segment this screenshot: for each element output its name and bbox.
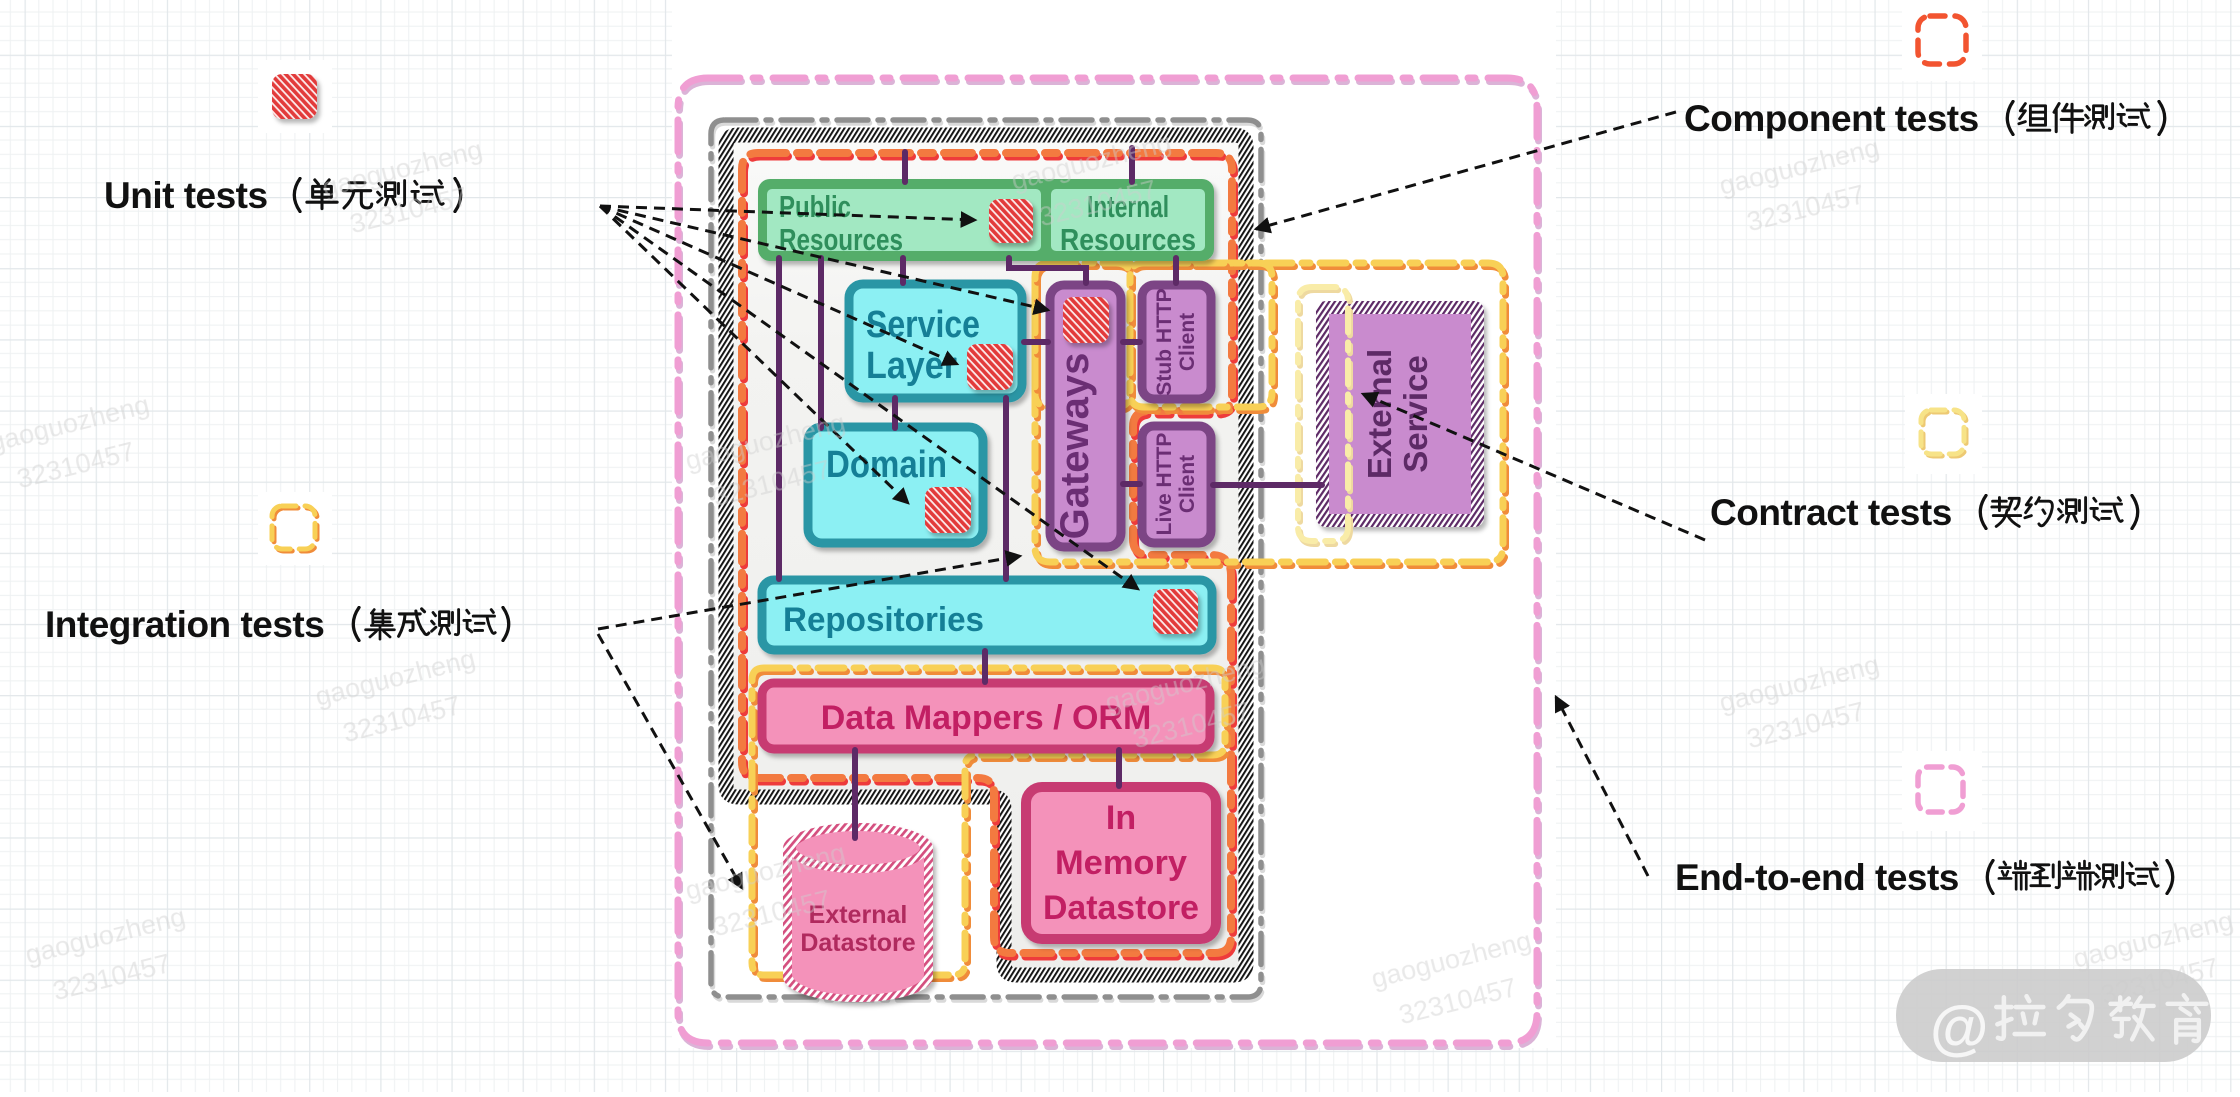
- svg-text:In: In: [1106, 799, 1136, 837]
- svg-text:External: External: [1361, 349, 1398, 479]
- svg-text:Layer: Layer: [866, 345, 957, 387]
- svg-text:Component tests: Component tests: [1684, 98, 1979, 139]
- svg-text:Service: Service: [866, 304, 980, 346]
- svg-text:Public: Public: [779, 189, 851, 224]
- svg-text:End-to-end tests: End-to-end tests: [1675, 857, 1959, 898]
- svg-text:Datastore: Datastore: [1043, 889, 1199, 927]
- svg-text:Domain: Domain: [826, 444, 947, 486]
- svg-text:Data Mappers / ORM: Data Mappers / ORM: [821, 699, 1152, 737]
- svg-text:Resources: Resources: [1060, 222, 1196, 257]
- svg-text:Datastore: Datastore: [800, 929, 915, 957]
- svg-text:Live HTTP: Live HTTP: [1153, 433, 1176, 536]
- svg-text:Client: Client: [1176, 455, 1199, 513]
- svg-text:Gateways: Gateways: [1053, 353, 1097, 540]
- svg-text:Unit tests: Unit tests: [104, 175, 268, 216]
- svg-text:Memory: Memory: [1055, 844, 1187, 882]
- svg-text:Contract tests: Contract tests: [1710, 492, 1952, 533]
- svg-text:Service: Service: [1397, 355, 1434, 472]
- svg-text:Integration tests: Integration tests: [45, 604, 324, 645]
- svg-text:Repositories: Repositories: [783, 601, 984, 639]
- svg-text:Stub HTTP: Stub HTTP: [1153, 288, 1176, 395]
- svg-text:@: @: [1930, 994, 1989, 1061]
- svg-text:Client: Client: [1176, 313, 1199, 371]
